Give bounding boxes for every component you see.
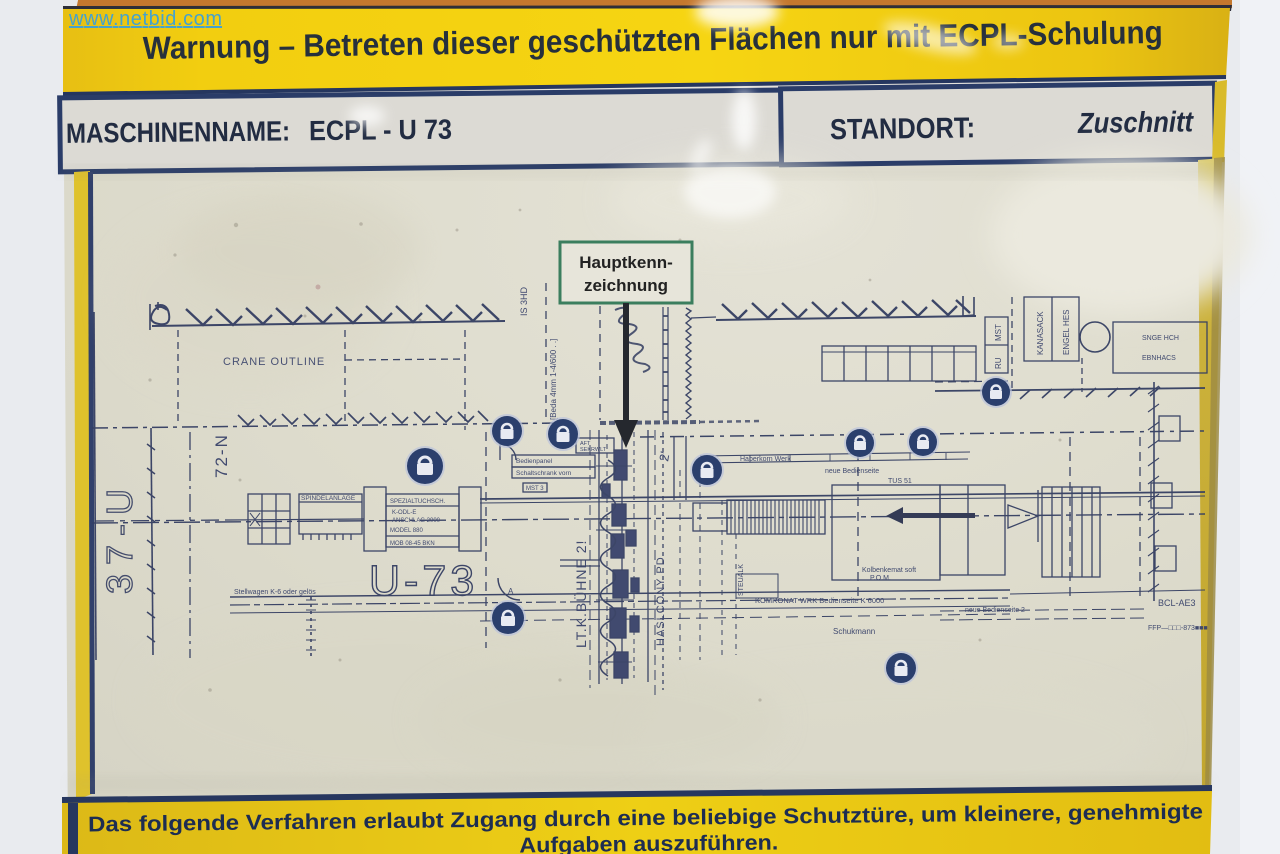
svg-text:STANDORT:: STANDORT: (830, 112, 975, 146)
svg-text:Aufgaben auszuführen.: Aufgaben auszuführen. (519, 830, 778, 854)
svg-text:TUS 51: TUS 51 (888, 478, 912, 485)
svg-text:FFP—□□□-873■■■: FFP—□□□-873■■■ (1148, 625, 1208, 632)
svg-text:Zuschnitt: Zuschnitt (1077, 106, 1194, 140)
svg-text:neue Bedienseite: neue Bedienseite (825, 468, 879, 475)
svg-text:Hauptkenn-: Hauptkenn- (579, 253, 673, 272)
svg-text:Kolbenkemat soft: Kolbenkemat soft (862, 567, 916, 574)
svg-text:MASCHINENNAME:: MASCHINENNAME: (66, 115, 290, 148)
svg-text:[Beda 4mm 1-4/600 . .]: [Beda 4mm 1-4/600 . .] (549, 339, 558, 420)
svg-text:Stellwagen K-6 oder gelös: Stellwagen K-6 oder gelös (234, 589, 316, 596)
svg-text:ANSCHLAG 2000: ANSCHLAG 2000 (392, 518, 441, 524)
svg-text:SPEZIALTUCHSCH.: SPEZIALTUCHSCH. (390, 499, 446, 505)
svg-text:Schukmann: Schukmann (833, 627, 875, 636)
svg-text:SNGE HCH: SNGE HCH (1142, 335, 1179, 342)
svg-text:IS 3HD: IS 3HD (519, 286, 529, 316)
svg-text:HASLCONY PD: HASLCONY PD (655, 556, 667, 646)
svg-text:37-U: 37-U (99, 480, 140, 594)
svg-text:P.O.M.: P.O.M. (870, 575, 891, 582)
svg-text:MOB 08-45 BKN: MOB 08-45 BKN (390, 541, 435, 547)
svg-text:EBNHACS: EBNHACS (1142, 355, 1176, 362)
svg-text:72-N: 72-N (212, 433, 231, 478)
svg-text:MST 3: MST 3 (526, 486, 544, 492)
svg-text:K-ODL-E: K-ODL-E (392, 510, 416, 516)
svg-text:zeichnung: zeichnung (584, 276, 668, 295)
svg-text:LT.K.BÜHNE 2!: LT.K.BÜHNE 2! (572, 540, 589, 648)
svg-text:KANASACK: KANASACK (1036, 311, 1045, 355)
svg-text:SEKRWLT: SEKRWLT (580, 447, 607, 453)
svg-text:U-73: U-73 (369, 557, 478, 605)
svg-text:MST: MST (994, 324, 1003, 341)
svg-text:RU: RU (994, 357, 1003, 369)
svg-text:CRANE OUTLINE: CRANE OUTLINE (223, 356, 325, 368)
svg-text:www.netbid.com: www.netbid.com (68, 8, 222, 30)
svg-text:MODEL 880: MODEL 880 (390, 528, 423, 534)
svg-text:ENGEL HES: ENGEL HES (1062, 310, 1071, 356)
svg-text:KOMRONAT WRK Bedienseite K 60: KOMRONAT WRK Bedienseite K 6000 (755, 596, 884, 605)
svg-text:Bedienpanel: Bedienpanel (516, 458, 553, 465)
svg-text:Schaltschrank vorn: Schaltschrank vorn (516, 470, 572, 477)
svg-text:BCL-AE3: BCL-AE3 (1158, 598, 1196, 608)
svg-text:SPINDELANLAGE: SPINDELANLAGE (301, 495, 356, 502)
svg-text:STEUALK: STEUALK (738, 564, 745, 596)
